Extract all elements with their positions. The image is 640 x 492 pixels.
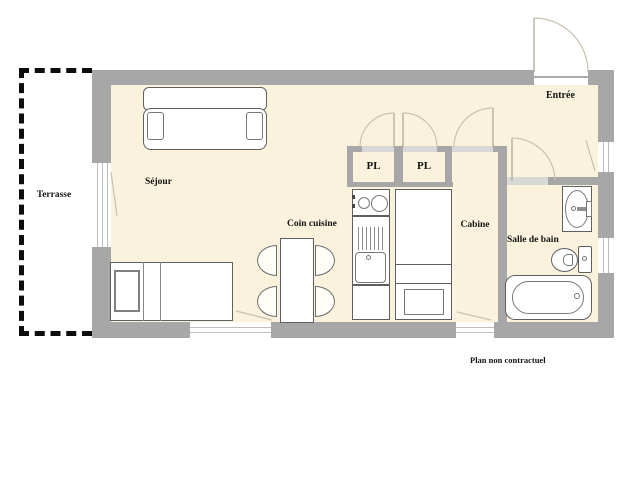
- drainboard-line: [378, 227, 379, 250]
- washbasin-faucet-base: [586, 201, 592, 217]
- tall-unit-divider: [395, 283, 452, 284]
- closet-door-opening-1: [362, 146, 394, 152]
- window-left-line: [102, 163, 103, 247]
- closet-divider-wall: [394, 146, 403, 187]
- drainboard-line: [358, 227, 359, 250]
- bathtub-drain: [574, 293, 580, 299]
- disclaimer-note: Plan non contractuel: [470, 356, 546, 365]
- bathroom-door-opening: [507, 177, 548, 185]
- room-label-pl-1: PL: [353, 161, 394, 172]
- window-bottom-2: [456, 322, 494, 338]
- bed-pillow: [114, 270, 140, 312]
- window-bottom-2-line: [456, 332, 494, 333]
- window-right-2-line: [608, 238, 609, 273]
- window-left-line: [97, 163, 98, 247]
- window-bottom-1-line: [190, 327, 271, 328]
- wall-bottom: [92, 322, 614, 338]
- drainboard-line: [370, 227, 371, 250]
- window-right-1-line: [603, 142, 604, 172]
- room-label-cabine: Cabine: [452, 221, 498, 231]
- wall-right: [598, 70, 614, 338]
- cabine-door-opening: [452, 146, 493, 152]
- window-left-line: [107, 163, 108, 247]
- tall-unit-drawer: [404, 289, 444, 315]
- window-bottom-1-line: [190, 332, 271, 333]
- washbasin-drain: [571, 206, 576, 211]
- drainboard-line: [366, 227, 367, 250]
- closet-door-opening-2: [403, 146, 437, 152]
- bed-line: [143, 262, 144, 321]
- toilet-flush-button: [582, 256, 587, 261]
- room-label-terrasse: Terrasse: [19, 191, 89, 201]
- window-right-1-line: [608, 142, 609, 172]
- room-label-pl-2: PL: [403, 161, 445, 172]
- toilet-inner: [563, 254, 573, 266]
- cooktop-knob: [352, 195, 355, 199]
- drainboard-line: [362, 227, 363, 250]
- drainboard-line: [382, 227, 383, 250]
- dining-table: [280, 238, 314, 323]
- window-right-1: [598, 142, 614, 172]
- terrasse-area: [19, 68, 92, 336]
- burner-large: [371, 195, 388, 212]
- window-bottom-1: [190, 322, 271, 338]
- bed-line: [160, 262, 161, 321]
- room-label-salle-de-bain: Salle de bain: [507, 236, 559, 246]
- window-bottom-2-line: [456, 327, 494, 328]
- window-right-2: [598, 238, 614, 273]
- sofa-armrest-left: [147, 112, 164, 140]
- sofa-armrest-right: [246, 112, 263, 140]
- cooktop-knob: [352, 204, 355, 208]
- kitchen-base-cabinet: [352, 285, 390, 320]
- closet-right-wall: [445, 146, 452, 187]
- entrance-threshold: [534, 76, 588, 78]
- bathtub-inner: [512, 281, 584, 314]
- window-right-2-line: [603, 238, 604, 273]
- entrance-door-swing: [534, 18, 588, 72]
- burner-small: [358, 197, 370, 209]
- drainboard-line: [374, 227, 375, 250]
- room-label-coin-cuisine: Coin cuisine: [287, 220, 337, 230]
- room-label-sejour: Séjour: [145, 178, 172, 188]
- floor-plan: Terrasse: [0, 0, 640, 492]
- room-label-entree: Entrée: [546, 91, 575, 101]
- tall-unit-divider: [395, 264, 452, 265]
- sink-drain: [366, 255, 371, 260]
